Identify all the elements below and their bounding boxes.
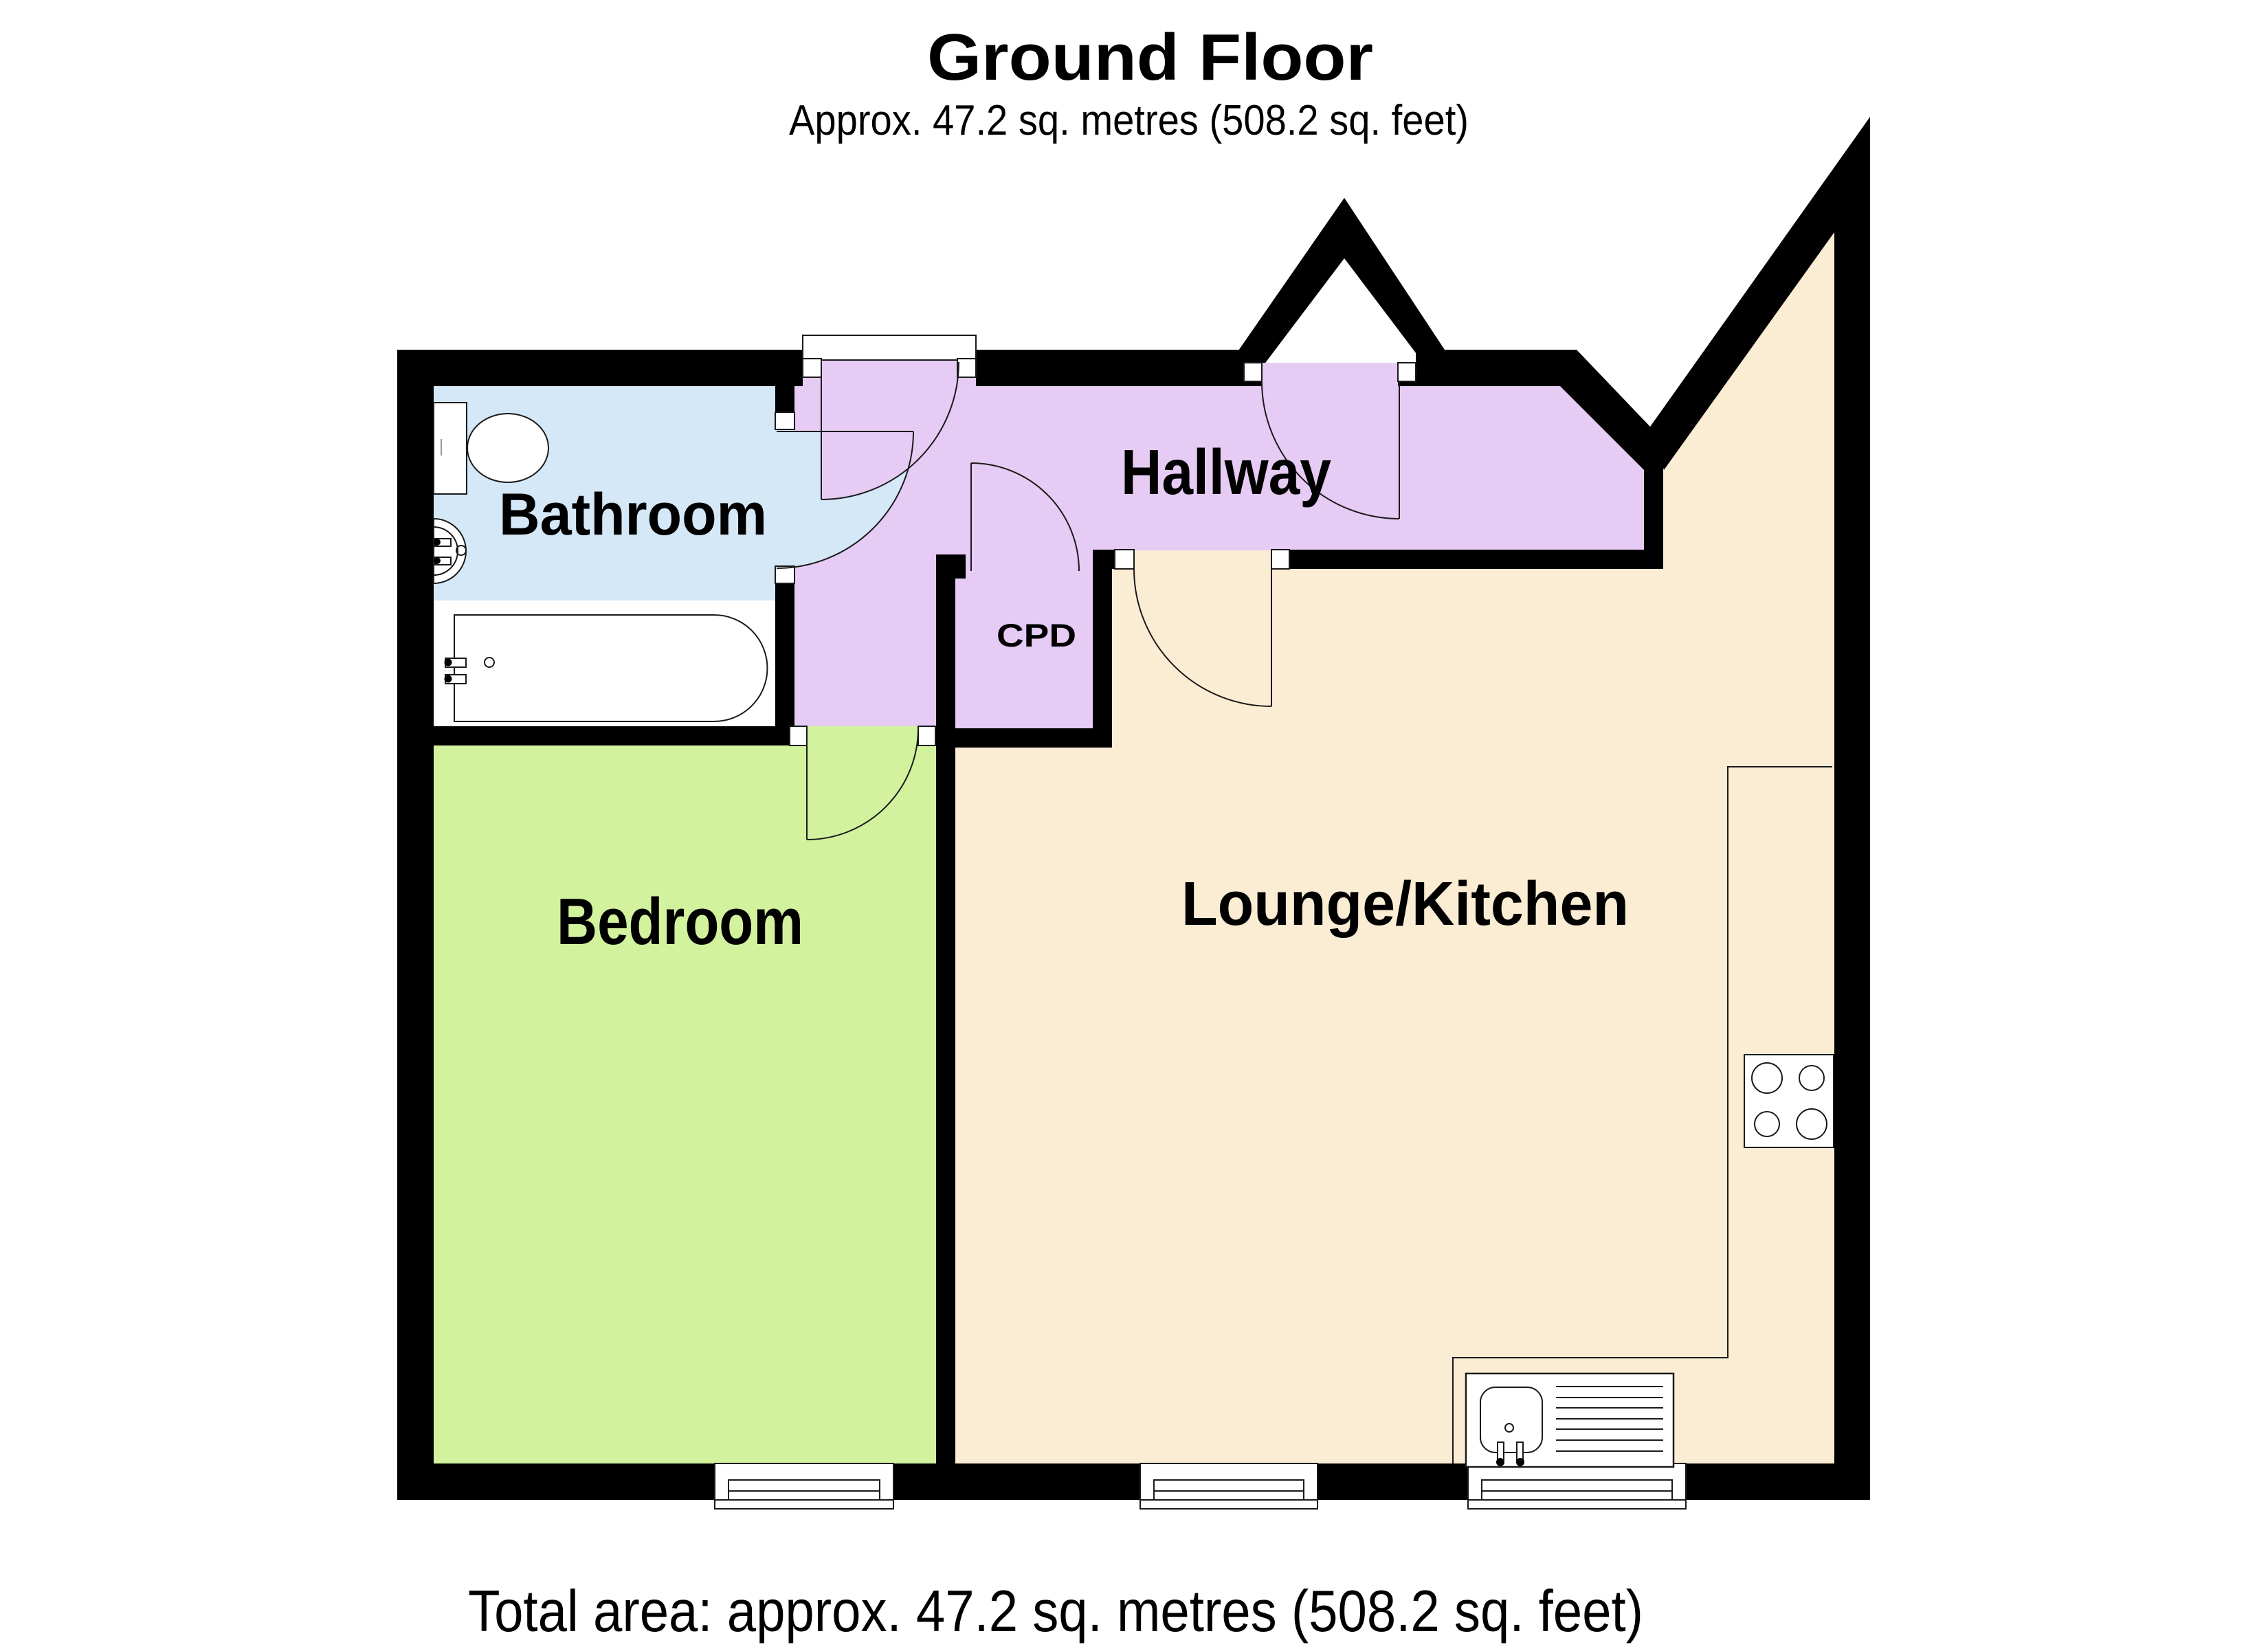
svg-text:Total area: approx. 47.2 sq. m: Total area: approx. 47.2 sq. metres (508… [468, 1579, 1643, 1644]
svg-text:Bathroom: Bathroom [499, 482, 767, 548]
svg-text:Ground Floor: Ground Floor [927, 21, 1373, 94]
svg-text:Approx. 47.2 sq. metres (508.2: Approx. 47.2 sq. metres (508.2 sq. feet) [789, 97, 1469, 144]
svg-text:Hallway: Hallway [1121, 436, 1331, 508]
svg-text:Bedroom: Bedroom [557, 885, 803, 958]
svg-text:CPD: CPD [997, 617, 1076, 653]
svg-text:Lounge/Kitchen: Lounge/Kitchen [1181, 870, 1629, 939]
